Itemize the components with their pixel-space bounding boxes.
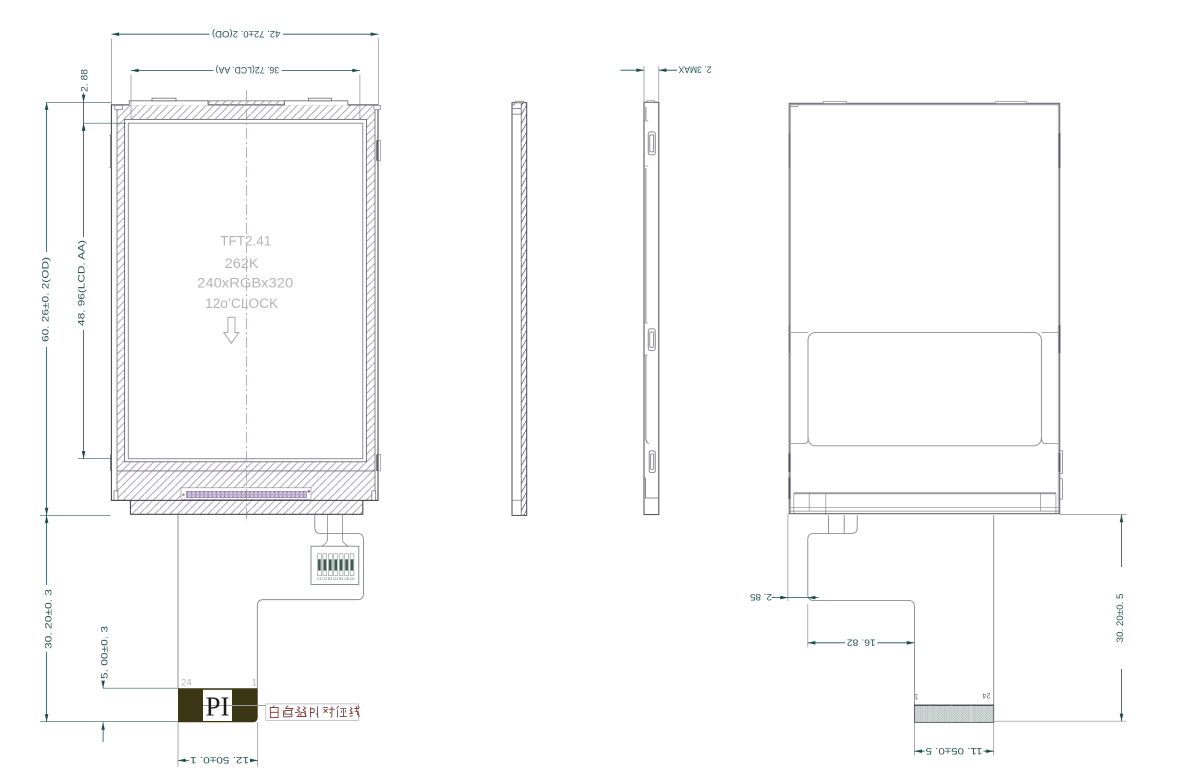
svg-text:30. 20±0. 5: 30. 20±0. 5 xyxy=(1114,594,1125,643)
svg-text:PI: PI xyxy=(205,692,229,722)
svg-text:24: 24 xyxy=(983,692,991,701)
svg-text:11. 05±0. 5: 11. 05±0. 5 xyxy=(926,746,983,757)
svg-text:2. 85: 2. 85 xyxy=(750,592,772,603)
svg-text:12o’CLOCK: 12o’CLOCK xyxy=(205,296,278,311)
svg-text:E1: E1 xyxy=(328,577,333,581)
svg-text:12. 50±0. 1: 12. 50±0. 1 xyxy=(190,755,249,766)
svg-text:C2: C2 xyxy=(322,577,327,581)
svg-text:1: 1 xyxy=(252,677,257,688)
svg-text:C1: C1 xyxy=(317,577,322,581)
svg-text:C6: C6 xyxy=(344,577,349,581)
svg-text:36. 72(LCD. AA): 36. 72(LCD. AA) xyxy=(216,65,280,76)
svg-text:D1: D1 xyxy=(333,577,338,581)
svg-text:1: 1 xyxy=(914,693,918,702)
svg-text:5. 00±0. 3: 5. 00±0. 3 xyxy=(99,626,110,679)
svg-text:2. 88: 2. 88 xyxy=(79,69,90,92)
svg-text:R1: R1 xyxy=(339,577,344,581)
svg-text:C6: C6 xyxy=(350,577,355,581)
svg-text:48. 96(LCD. AA): 48. 96(LCD. AA) xyxy=(76,240,87,326)
svg-text:24: 24 xyxy=(181,677,192,688)
svg-text:30. 20±0. 3: 30. 20±0. 3 xyxy=(42,589,53,649)
svg-text:TFT2.41: TFT2.41 xyxy=(220,233,271,248)
svg-text:16. 82: 16. 82 xyxy=(847,637,876,648)
svg-text:262K: 262K xyxy=(225,256,259,271)
svg-text:240xRGBx320: 240xRGBx320 xyxy=(197,276,293,291)
svg-text:60. 26±0. 2(OD): 60. 26±0. 2(OD) xyxy=(40,257,51,342)
svg-text:42. 72±0. 2(OD): 42. 72±0. 2(OD) xyxy=(212,29,281,40)
svg-text:2. 3MAX: 2. 3MAX xyxy=(678,65,712,76)
